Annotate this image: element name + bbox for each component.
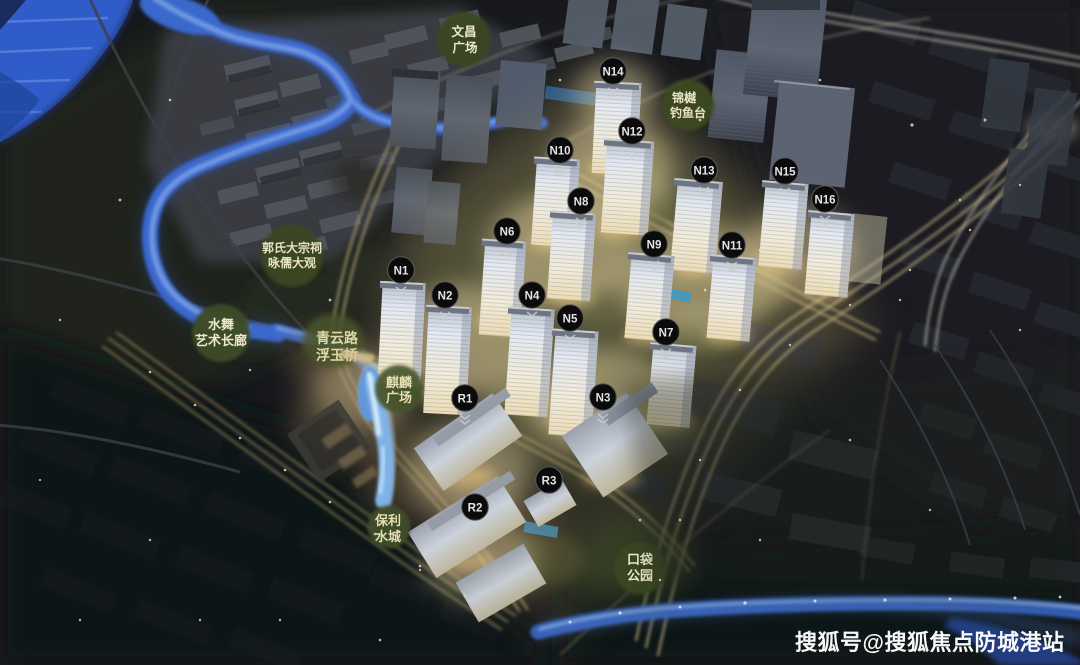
svg-text:N12: N12 (621, 127, 642, 139)
svg-text:N7: N7 (659, 328, 674, 340)
svg-text:口袋: 口袋 (627, 552, 654, 567)
svg-text:N1: N1 (394, 266, 409, 278)
svg-text:N6: N6 (500, 227, 515, 239)
svg-text:广场: 广场 (386, 390, 412, 405)
svg-text:艺术长廊: 艺术长廊 (195, 333, 247, 348)
svg-text:保利: 保利 (374, 513, 401, 528)
svg-text:N5: N5 (563, 314, 578, 326)
svg-text:N9: N9 (647, 240, 662, 252)
svg-text:搜狐号@搜狐焦点防城港站: 搜狐号@搜狐焦点防城港站 (795, 630, 1064, 655)
svg-text:N8: N8 (574, 197, 589, 209)
svg-text:N14: N14 (602, 67, 624, 79)
svg-text:R1: R1 (458, 394, 473, 406)
svg-text:水城: 水城 (375, 529, 401, 544)
svg-text:广场: 广场 (452, 40, 477, 55)
svg-text:文昌: 文昌 (451, 24, 476, 39)
svg-text:锦樾: 锦樾 (672, 90, 697, 105)
svg-text:R2: R2 (468, 503, 483, 515)
svg-text:N4: N4 (525, 291, 540, 303)
svg-text:郭氏大宗祠: 郭氏大宗祠 (262, 240, 322, 255)
svg-text:N3: N3 (596, 393, 611, 405)
svg-text:青云路: 青云路 (316, 330, 359, 346)
svg-text:水舞: 水舞 (208, 317, 234, 332)
svg-text:N2: N2 (438, 291, 453, 303)
svg-text:N15: N15 (774, 167, 796, 179)
svg-text:咏儒大观: 咏儒大观 (268, 255, 316, 270)
svg-text:钓鱼台: 钓鱼台 (670, 105, 706, 120)
svg-text:公园: 公园 (627, 568, 653, 583)
svg-text:N10: N10 (549, 146, 570, 158)
svg-text:N11: N11 (722, 241, 743, 253)
svg-text:N13: N13 (693, 166, 714, 178)
svg-text:N16: N16 (814, 195, 835, 207)
svg-text:R3: R3 (542, 476, 557, 488)
svg-text:麒麟: 麒麟 (386, 375, 413, 390)
